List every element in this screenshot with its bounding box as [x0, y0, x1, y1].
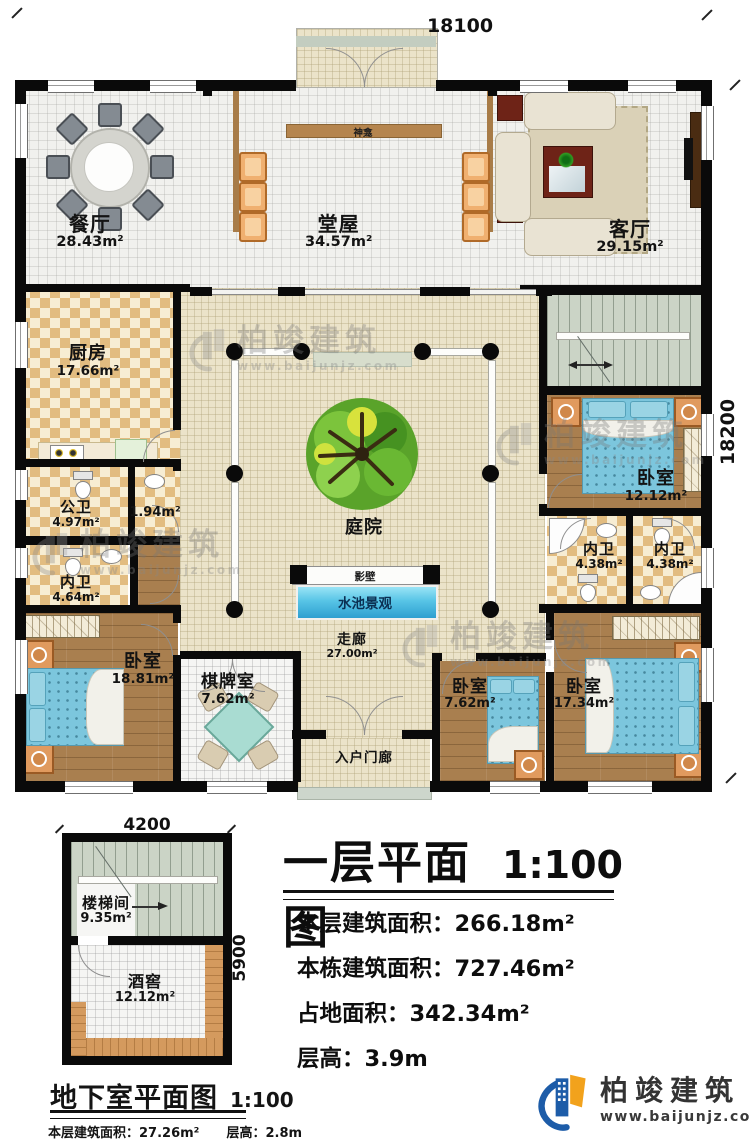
- label-inner-bath-r1: 内卫 4.38m²: [560, 541, 638, 571]
- room-name: 内卫: [560, 541, 638, 558]
- survey-tick: [11, 7, 22, 18]
- window: [490, 781, 540, 794]
- hall-chair: [462, 182, 490, 212]
- room-name: 卧室: [98, 652, 188, 672]
- courtyard-pillar: [482, 343, 499, 360]
- stat-line: 占地面积：342.34m²: [297, 996, 575, 1028]
- window: [588, 781, 652, 794]
- window: [65, 781, 133, 794]
- wall-hall-court-stub: [536, 287, 552, 296]
- stove-burner: [69, 449, 77, 457]
- company-logo-icon: [533, 1070, 591, 1132]
- sink: [596, 523, 617, 538]
- hall-step: [313, 352, 412, 367]
- stat-line: 本层建筑面积：266.18m²: [297, 906, 575, 938]
- room-area: 7.62m²: [178, 692, 278, 707]
- room-area: 34.57m²: [305, 235, 372, 251]
- colonnade-beam: [231, 482, 239, 603]
- room-name: 走廊: [316, 633, 388, 648]
- sofa-top: [524, 92, 616, 130]
- courtyard-pillar: [482, 465, 499, 482]
- glazing: [470, 289, 536, 295]
- wardrobe: [612, 616, 700, 640]
- basement-stat-label: 本层建筑面积：: [48, 1126, 139, 1141]
- bed-pillow: [678, 662, 695, 702]
- glazing: [305, 289, 420, 295]
- room-area: 28.43m²: [35, 235, 145, 251]
- basement-stat-label: 层高：: [226, 1126, 265, 1141]
- room-area: 4.97m²: [30, 516, 122, 529]
- toilet: [73, 471, 93, 499]
- basement-title-underline: [50, 1110, 246, 1119]
- wall-chess-right: [293, 651, 301, 782]
- room-area: 1.94m²: [126, 506, 184, 520]
- room-area: 7.62m²: [426, 697, 514, 711]
- survey-tick: [725, 772, 736, 783]
- courtyard-pillar: [482, 601, 499, 618]
- room-name: 内卫: [30, 574, 122, 591]
- toilet-bowl: [580, 584, 596, 602]
- wardrobe: [24, 615, 100, 638]
- label-bedroom-right: 卧室 12.12m²: [606, 469, 706, 504]
- wall-stub-dining-hall: [203, 80, 212, 96]
- colonnade-beam: [488, 360, 496, 466]
- company-logo: 柏竣建筑 www.baijunjz.com: [533, 1070, 750, 1132]
- bed-pillow: [588, 401, 626, 418]
- window: [150, 80, 196, 93]
- stat-label: 层高：: [297, 1046, 365, 1072]
- floor-plan-sheet: 18100 18200: [0, 0, 750, 1146]
- room-area: 4.64m²: [30, 591, 122, 604]
- window: [701, 106, 714, 160]
- sink: [144, 474, 165, 489]
- floor-stairs: [547, 295, 701, 388]
- room-area: 27.00m²: [316, 648, 388, 660]
- sink: [101, 549, 122, 564]
- wall-chess-top: [180, 651, 300, 659]
- room-name: 卧室: [606, 469, 706, 489]
- room-area: 17.66m²: [38, 364, 138, 379]
- sink: [640, 585, 661, 600]
- courtyard-pillar: [226, 343, 243, 360]
- basement-stat-value: 2.8m: [265, 1126, 302, 1141]
- wall-hall-court-stub: [420, 287, 470, 296]
- window: [207, 781, 267, 794]
- window: [15, 104, 28, 158]
- end-table: [497, 95, 523, 121]
- room-name: 堂屋: [305, 213, 372, 235]
- courtyard-pillar: [414, 343, 431, 360]
- company-name: 柏竣建筑: [600, 1077, 750, 1105]
- wall-bedsmall-top-b: [476, 653, 546, 661]
- company-website: www.baijunjz.com: [600, 1109, 750, 1125]
- nightstand: [551, 397, 581, 427]
- wall-innerbath-bedroom: [15, 605, 180, 613]
- window: [628, 80, 676, 93]
- label-living: 客厅 29.15m²: [580, 218, 680, 256]
- room-area: 17.34m²: [538, 697, 630, 711]
- room-name: 入户门廊: [314, 751, 414, 766]
- room-area: 12.12m²: [606, 489, 706, 504]
- dining-chair: [150, 155, 174, 179]
- dimension-top: 18100: [425, 15, 495, 37]
- wall-stairs-left: [539, 285, 547, 388]
- wall-porch-stub-left: [292, 730, 326, 739]
- plan-stats: 本层建筑面积：266.18m² 本栋建筑面积：727.46m² 占地面积：342…: [297, 906, 575, 1086]
- stat-line: 层高：3.9m: [297, 1041, 575, 1073]
- stair-arrow: [604, 361, 613, 369]
- stat-label: 占地面积：: [297, 1001, 410, 1027]
- basement-mid-door-gap: [78, 936, 108, 945]
- rear-porch-canopy: [296, 36, 436, 47]
- hall-chair: [462, 152, 490, 182]
- room-name: 庭院: [328, 518, 400, 538]
- courtyard-tree: [300, 392, 424, 516]
- window: [48, 80, 94, 93]
- stove-burner: [55, 449, 63, 457]
- stair-arrow: [568, 361, 577, 369]
- room-name: 卧室: [426, 678, 514, 697]
- label-bedroom-se: 卧室 17.34m²: [538, 678, 630, 711]
- label-inner-bath-r2: 内卫 4.38m²: [634, 541, 706, 571]
- toilet-bowl: [75, 481, 91, 499]
- dining-chair: [98, 103, 122, 127]
- room-name: 厨房: [38, 344, 138, 364]
- toilet-tank: [63, 548, 83, 557]
- room-area: 9.35m²: [74, 912, 138, 926]
- label-hall: 堂屋 34.57m²: [305, 213, 372, 251]
- wall-innerbath-vest: [130, 545, 138, 605]
- label-public-bath: 公卫 4.97m²: [30, 499, 122, 529]
- wall-baths-bottom: [539, 604, 712, 613]
- wall-bedse-left-a: [546, 613, 554, 640]
- toilet: [63, 548, 83, 576]
- stat-value: 727.46m²: [455, 956, 575, 982]
- courtyard-pillar: [226, 601, 243, 618]
- stat-label: 本层建筑面积：: [297, 911, 455, 937]
- room-name: 客厅: [580, 218, 680, 240]
- hall-chair: [239, 152, 267, 182]
- survey-tick: [729, 79, 740, 90]
- nightstand: [674, 397, 704, 427]
- stair-direction-line: [576, 364, 606, 366]
- room-name: 楼梯间: [74, 895, 138, 912]
- label-entry-porch: 入户门廊: [314, 751, 414, 766]
- room-name: 卧室: [538, 678, 630, 697]
- label-stairwell: 楼梯间 9.35m²: [74, 895, 138, 926]
- room-name: 内卫: [634, 541, 706, 558]
- wall-bedr-baths: [539, 508, 712, 516]
- window: [520, 80, 568, 93]
- label-courtyard: 庭院: [328, 518, 400, 538]
- colonnade-beam: [430, 348, 484, 356]
- room-area: 29.15m²: [580, 240, 680, 256]
- room-name: 酒窖: [105, 973, 185, 991]
- wine-cellar-rack-bottom: [86, 1038, 223, 1056]
- wine-cellar-rack-left: [71, 1002, 86, 1056]
- room-name: 公卫: [30, 499, 122, 516]
- wall-bedr-left: [539, 395, 547, 474]
- courtyard-pillar: [293, 343, 310, 360]
- basement-stat-value: 27.26m²: [139, 1126, 199, 1141]
- colonnade-beam: [231, 360, 239, 466]
- wall-kitchen-right: [173, 284, 181, 430]
- wall-bedl-right-a: [173, 605, 181, 623]
- hall-chair: [239, 212, 267, 242]
- stat-value: 342.34m²: [410, 1001, 530, 1027]
- window: [15, 470, 28, 500]
- bed-pillow: [630, 401, 668, 418]
- screen-wall-end: [423, 565, 440, 584]
- bed-pillow: [29, 708, 46, 742]
- room-name: 棋牌室: [178, 673, 278, 692]
- wall-dining-kitchen: [15, 284, 190, 292]
- dimension-right: 18200: [717, 394, 739, 470]
- basement-stair-landing: [78, 876, 218, 884]
- wall-porch-stub-right: [402, 730, 436, 739]
- room-area: 18.81m²: [98, 672, 188, 687]
- window: [15, 322, 28, 368]
- window: [15, 640, 28, 694]
- coffee-table-glass: [549, 166, 585, 192]
- window: [15, 548, 28, 578]
- survey-tick: [701, 9, 712, 20]
- bed-pillow: [678, 706, 695, 746]
- wall-hall-court-stub: [278, 287, 305, 296]
- label-kitchen: 厨房 17.66m²: [38, 344, 138, 379]
- nightstand: [24, 640, 54, 670]
- nightstand: [24, 744, 54, 774]
- entry-porch-steps: [297, 787, 432, 800]
- label-bedroom-left: 卧室 18.81m²: [98, 652, 188, 687]
- wall-stub-hall-living: [488, 80, 497, 96]
- window: [701, 414, 714, 456]
- bed-pillow: [29, 672, 46, 706]
- sofa-left: [495, 132, 531, 222]
- basement-scale: 1:100: [230, 1088, 294, 1112]
- room-area: 4.38m²: [634, 558, 706, 571]
- basement-stair-arrow: [158, 902, 168, 910]
- toilet-tank: [578, 574, 598, 583]
- label-dining: 餐厅 28.43m²: [35, 213, 145, 251]
- screen-wall-label: 影壁: [335, 569, 395, 584]
- main-title-underline: [283, 890, 614, 900]
- bed-pillow: [513, 679, 535, 694]
- bed-sheet: [583, 420, 673, 438]
- label-wine-cellar: 酒窖 12.12m²: [105, 973, 185, 1005]
- colonnade-beam: [488, 482, 496, 603]
- basement-dim-right: 5900: [230, 928, 250, 988]
- dining-chair: [46, 155, 70, 179]
- label-chess-room: 棋牌室 7.62m²: [178, 673, 278, 707]
- room-area: 4.38m²: [560, 558, 638, 571]
- room-name: 餐厅: [35, 213, 145, 235]
- toilet-tank: [73, 471, 93, 480]
- basement-dim-top: 4200: [107, 815, 187, 835]
- label-corridor: 走廊 27.00m²: [316, 633, 388, 660]
- label-small-room: 1.94m²: [126, 506, 184, 520]
- main-scale: 1:100: [502, 843, 623, 887]
- stat-value: 3.9m: [365, 1046, 428, 1072]
- stat-value: 266.18m²: [455, 911, 575, 937]
- colonnade-beam: [243, 348, 297, 356]
- label-bedroom-small: 卧室 7.62m²: [426, 678, 514, 711]
- glazing: [212, 289, 278, 295]
- stat-label: 本栋建筑面积：: [297, 956, 455, 982]
- courtyard-pillar: [226, 465, 243, 482]
- pool-label: 水池景观: [310, 592, 420, 612]
- shrine-label: 神龛: [333, 125, 393, 139]
- hall-chair: [239, 182, 267, 212]
- toilet: [578, 574, 598, 602]
- plant: [558, 152, 574, 168]
- hall-chair: [462, 212, 490, 242]
- wall-outer-bottom-right: [430, 781, 712, 792]
- wall-pubbath-small: [128, 459, 135, 536]
- label-inner-bath-left: 内卫 4.64m²: [30, 574, 122, 604]
- wall-stairs-bottom: [539, 386, 712, 395]
- nightstand: [514, 750, 544, 780]
- dining-table-top: [84, 142, 134, 192]
- window: [701, 648, 714, 702]
- wall-pubbath-innerbath: [15, 536, 180, 545]
- wall-bedsmall-left: [432, 653, 440, 782]
- stat-line: 本栋建筑面积：727.46m²: [297, 951, 575, 983]
- tv: [684, 138, 693, 180]
- screen-wall-end: [290, 565, 307, 584]
- room-area: 12.12m²: [105, 991, 185, 1005]
- wall-hall-court-stub: [190, 287, 212, 296]
- basement-stats: 本层建筑面积：27.26m² 层高：2.8m: [48, 1122, 318, 1141]
